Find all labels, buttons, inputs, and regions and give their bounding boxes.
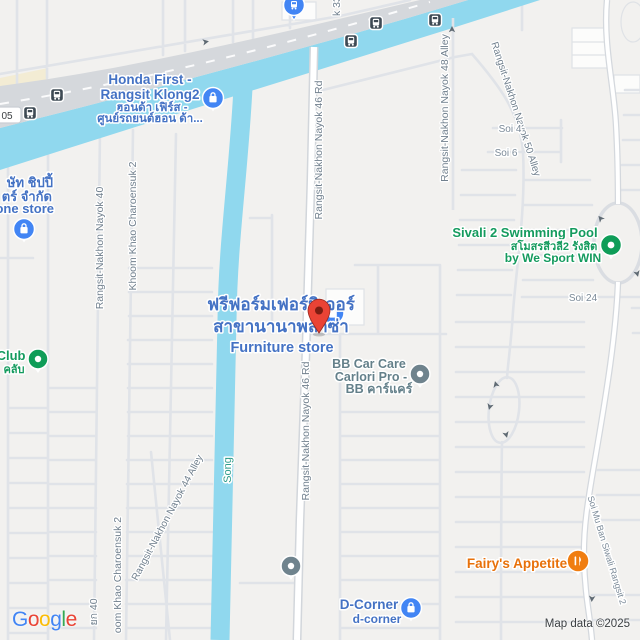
road-label-nayok46-top: Rangsit-Nakhon Nayok 46 Rd xyxy=(313,80,325,219)
svg-text:05: 05 xyxy=(1,111,13,122)
phone-store-line3: hone store xyxy=(0,201,54,216)
club-line1: Club xyxy=(0,348,25,363)
bus-stop-icon[interactable] xyxy=(24,107,37,120)
road-label-soi6: Soi 6 xyxy=(495,148,518,159)
honda-line3: ฮอนด้า เฟิร์ส - xyxy=(116,100,187,114)
bb-line1: BB Car Care xyxy=(332,357,406,371)
poi-label-club[interactable]: Club คลับ xyxy=(0,348,25,376)
bus-stop-icon[interactable] xyxy=(370,17,383,30)
furniture-line1: ฟรีฟอร์มเฟอร์นิเจอร์ xyxy=(207,294,356,314)
d-corner-line1: D-Corner xyxy=(340,597,399,612)
google-logo-letter: e xyxy=(66,608,77,632)
water-label-song: Song xyxy=(222,457,234,483)
route-305-badge: 05 xyxy=(0,107,21,123)
road-label-nayok48: Rangsit-Nakhon Nayok 48 Alley xyxy=(439,33,451,181)
road-label-charoensuk-bottom: oom Khao Charoensuk 2 xyxy=(112,517,124,633)
road-label-33: k 33 xyxy=(331,0,343,16)
road-label-nayok40-thai: ยก 40 xyxy=(88,598,100,625)
honda-line1: Honda First - xyxy=(108,72,191,87)
google-logo-letter: o xyxy=(28,608,39,632)
google-logo-letter: g xyxy=(50,608,61,632)
map-canvas[interactable]: 05 xyxy=(0,0,640,640)
furniture-line2: สาขานานาพลาซ่า xyxy=(213,317,349,336)
road-label-soi4: Soi 4 xyxy=(499,124,522,135)
d-corner-line2: d-corner xyxy=(353,612,402,626)
poi-label-phone-store[interactable]: ษัท ชิปปี้ ตร์ จำกัด hone store xyxy=(0,172,54,216)
club-line2: คลับ xyxy=(3,363,24,376)
google-logo[interactable]: Google xyxy=(12,608,77,632)
sivali-line3: by We Sport WIN xyxy=(505,251,601,265)
bus-stop-icon[interactable] xyxy=(429,14,442,27)
honda-line2: Rangsit Klong2 xyxy=(100,87,199,102)
road-label-nayok40: Rangsit-Nakhon Nayok 40 xyxy=(94,187,106,310)
road-label-charoensuk-top: Khoom Khao Charoensuk 2 xyxy=(127,161,139,290)
bb-line3: BB คาร์แคร์ xyxy=(346,381,413,396)
road-label-nayok46-bottom: Rangsit-Nakhon Nayok 46 Rd xyxy=(300,361,312,500)
bus-stop-icon[interactable] xyxy=(51,89,64,102)
fairys-line1: Fairy's Appetite xyxy=(467,556,568,571)
map-svg: 05 xyxy=(0,0,640,640)
bus-stop-icon[interactable] xyxy=(345,35,358,48)
poi-label-honda[interactable]: Honda First - Rangsit Klong2 ฮอนด้า เฟิร… xyxy=(97,72,203,126)
map-attribution[interactable]: Map data ©2025 xyxy=(545,618,630,630)
phone-store-line1: ษัท ชิปปี้ xyxy=(6,172,53,190)
road-label-soi24: Soi 24 xyxy=(569,293,598,304)
sivali-line1: Sivali 2 Swimming Pool xyxy=(452,225,597,240)
poi-label-fairys[interactable]: Fairy's Appetite xyxy=(467,556,568,571)
furniture-line3: Furniture store xyxy=(230,340,333,356)
honda-line4: ศูนย์รถยนต์ฮอน ด้า... xyxy=(97,111,203,126)
google-logo-letter: o xyxy=(39,608,50,632)
google-logo-letter: G xyxy=(12,608,28,632)
